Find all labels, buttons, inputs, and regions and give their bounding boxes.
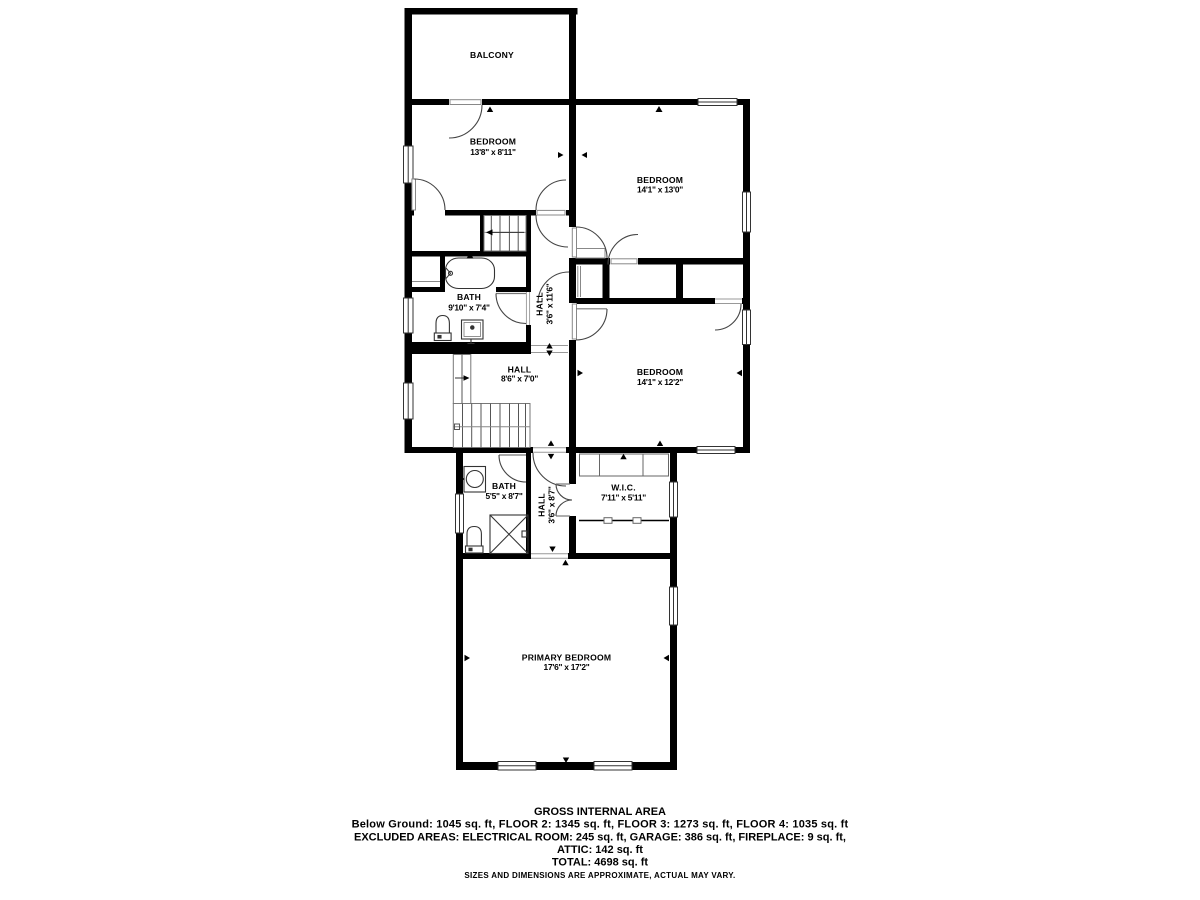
svg-text:W.I.C.: W.I.C. (611, 483, 636, 493)
svg-text:BEDROOM: BEDROOM (637, 367, 683, 377)
svg-text:5'5" x 8'7": 5'5" x 8'7" (485, 491, 522, 501)
svg-text:3'6" x 11'6": 3'6" x 11'6" (545, 283, 555, 324)
svg-text:HALL: HALL (535, 292, 545, 316)
svg-text:SIZES AND DIMENSIONS ARE APPRO: SIZES AND DIMENSIONS ARE APPROXIMATE, AC… (464, 871, 735, 880)
svg-text:14'1" x 12'2": 14'1" x 12'2" (637, 377, 683, 387)
svg-text:8'6" x 7'0": 8'6" x 7'0" (501, 374, 538, 384)
svg-text:ATTIC: 142 sq. ft: ATTIC: 142 sq. ft (557, 844, 643, 856)
svg-text:3'6" x 8'7": 3'6" x 8'7" (547, 486, 557, 523)
svg-text:HALL: HALL (537, 493, 547, 517)
svg-text:17'6" x 17'2": 17'6" x 17'2" (544, 662, 590, 672)
svg-text:PRIMARY BEDROOM: PRIMARY BEDROOM (522, 653, 611, 663)
svg-text:BEDROOM: BEDROOM (637, 175, 683, 185)
svg-text:BATH: BATH (492, 481, 516, 491)
svg-text:14'1" x 13'0": 14'1" x 13'0" (637, 185, 683, 195)
svg-text:13'8" x 8'11": 13'8" x 8'11" (470, 147, 516, 157)
svg-text:EXCLUDED AREAS: ELECTRICAL ROO: EXCLUDED AREAS: ELECTRICAL ROOM: 245 sq.… (354, 832, 846, 844)
svg-text:Below Ground: 1045 sq. ft, FLO: Below Ground: 1045 sq. ft, FLOOR 2: 1345… (352, 819, 849, 831)
svg-text:TOTAL: 4698 sq. ft: TOTAL: 4698 sq. ft (552, 857, 649, 869)
svg-text:BEDROOM: BEDROOM (470, 137, 516, 147)
svg-text:GROSS INTERNAL AREA: GROSS INTERNAL AREA (534, 806, 666, 818)
svg-text:9'10" x 7'4": 9'10" x 7'4" (448, 303, 490, 313)
svg-text:BALCONY: BALCONY (470, 50, 514, 60)
svg-text:BATH: BATH (457, 292, 481, 302)
svg-text:7'11" x 5'11": 7'11" x 5'11" (601, 493, 646, 503)
